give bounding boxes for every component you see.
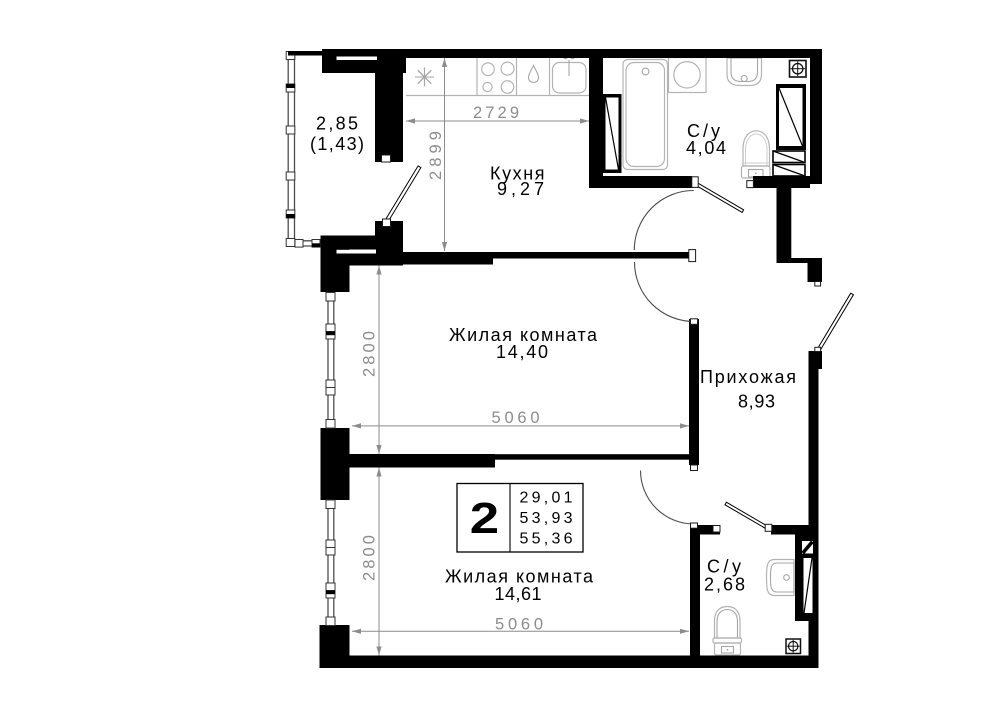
svg-text:9,27: 9,27 bbox=[497, 179, 544, 199]
svg-text:8,93: 8,93 bbox=[738, 392, 775, 412]
svg-text:2,68: 2,68 bbox=[704, 575, 745, 595]
svg-text:2,85: 2,85 bbox=[316, 114, 358, 134]
svg-text:(1,43): (1,43) bbox=[310, 134, 364, 154]
svg-text:2: 2 bbox=[470, 494, 499, 543]
svg-text:4,04: 4,04 bbox=[686, 138, 726, 158]
svg-text:53,93: 53,93 bbox=[520, 510, 573, 527]
svg-text:29,01: 29,01 bbox=[520, 490, 573, 507]
svg-text:14,61: 14,61 bbox=[495, 584, 542, 604]
svg-text:14,40: 14,40 bbox=[496, 342, 548, 362]
svg-text:С/у: С/у bbox=[707, 557, 741, 577]
svg-text:Прихожая: Прихожая bbox=[700, 367, 796, 387]
svg-text:55,36: 55,36 bbox=[520, 531, 573, 548]
